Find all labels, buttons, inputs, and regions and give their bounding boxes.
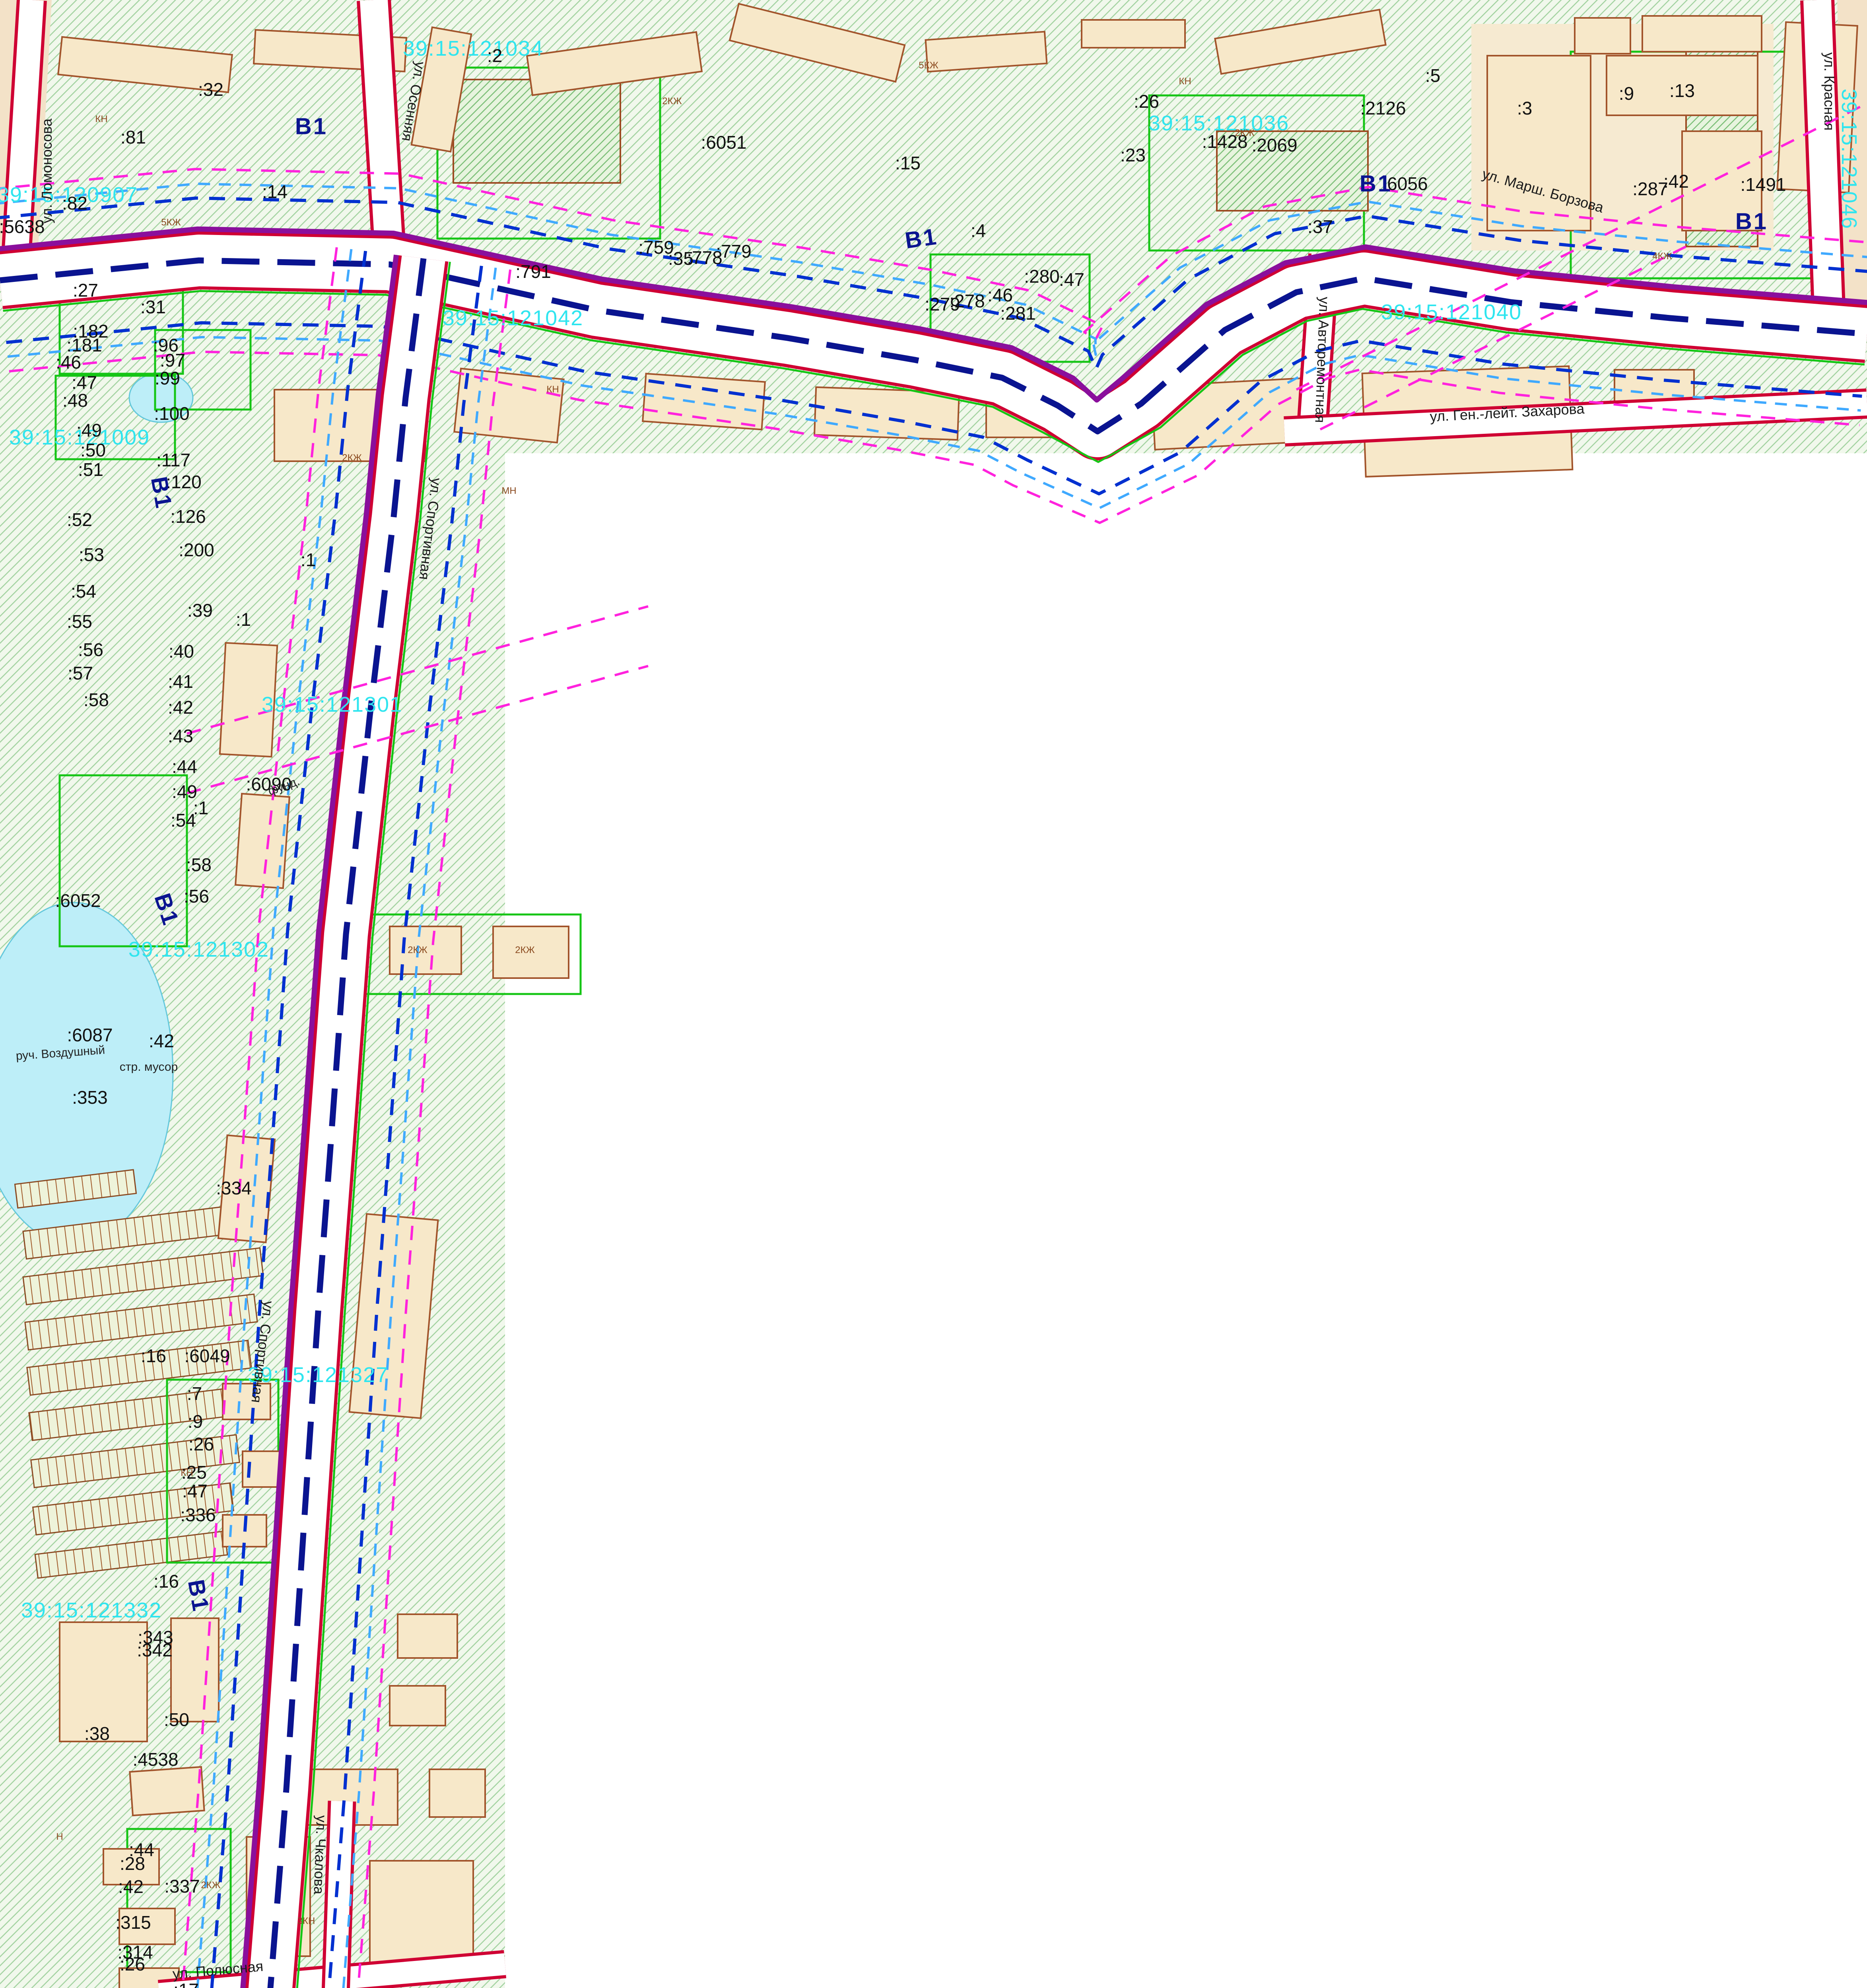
pond bbox=[129, 373, 193, 422]
map-sheet: 39:15:12103439:15:12103639:15:12090739:1… bbox=[0, 0, 1867, 1988]
map-drawing bbox=[0, 0, 1867, 1988]
